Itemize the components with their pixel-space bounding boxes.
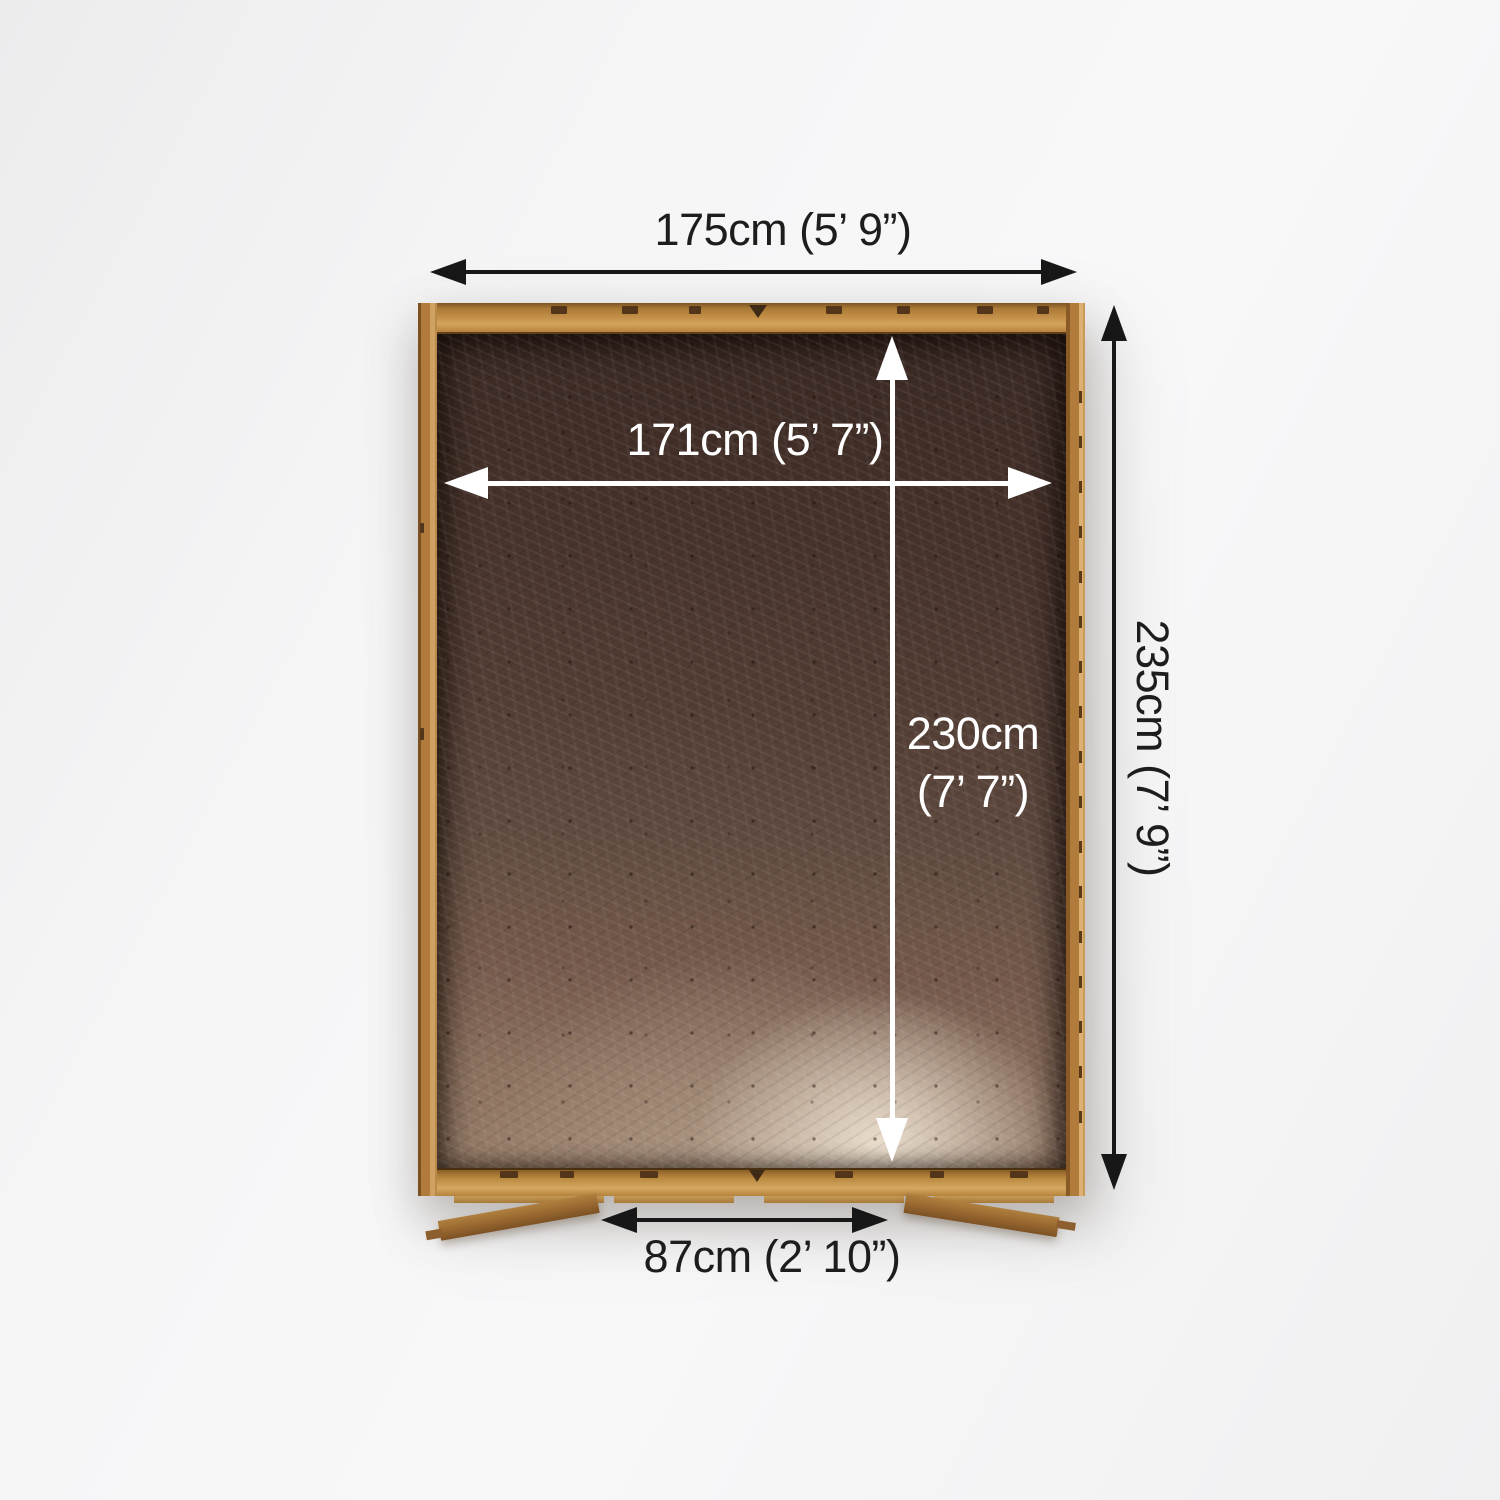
inner-depth-label: 230cm (7’ 7”)	[907, 705, 1040, 821]
board-gap	[622, 306, 638, 314]
arrowhead-down	[1101, 1154, 1127, 1190]
arrow-shaft	[890, 380, 895, 1118]
dimension-diagram: 175cm (5’ 9”) 235cm (7’ 9”) 171cm (5’ 7”…	[0, 0, 1500, 1500]
board-gap	[1037, 306, 1049, 314]
arrowhead-right	[1008, 467, 1052, 499]
arrowhead-left	[601, 1207, 637, 1233]
wall-bottom	[434, 1168, 1069, 1196]
outer-width-label: 175cm (5’ 9”)	[655, 204, 912, 256]
arrowhead-right	[852, 1207, 888, 1233]
board-gap	[551, 306, 567, 314]
board-notch	[749, 1170, 765, 1182]
board-gap	[835, 1171, 853, 1178]
board-gap	[420, 728, 424, 740]
board-gap	[560, 1171, 574, 1178]
inner-depth-line1: 230cm	[907, 705, 1040, 763]
door-width-arrow	[601, 1207, 888, 1233]
arrowhead-right	[1041, 259, 1077, 285]
arrowhead-down	[876, 1118, 908, 1162]
board-gap	[689, 306, 701, 314]
wall-left	[418, 303, 437, 1196]
arrow-shaft	[488, 481, 1008, 486]
board-gap	[826, 306, 842, 314]
board-gap	[977, 306, 993, 314]
board-gap	[640, 1171, 658, 1178]
inner-depth-line2: (7’ 7”)	[907, 763, 1040, 821]
board-gap	[1010, 1171, 1028, 1178]
wall-top	[418, 303, 1085, 334]
arrow-shaft	[637, 1218, 852, 1222]
door-width-label: 87cm (2’ 10”)	[644, 1231, 901, 1283]
outer-depth-label: 235cm (7’ 9”)	[1126, 620, 1178, 877]
base-tab	[614, 1196, 734, 1203]
board-gap	[897, 306, 910, 314]
arrowhead-up	[1101, 305, 1127, 341]
arrowhead-left	[430, 259, 466, 285]
board-notch	[749, 305, 767, 318]
board-gap	[500, 1171, 518, 1178]
board-gap	[420, 523, 424, 533]
arrowhead-left	[444, 467, 488, 499]
outer-depth-arrow	[1101, 305, 1127, 1190]
arrowhead-up	[876, 336, 908, 380]
board-gap	[930, 1171, 944, 1178]
wall-right	[1066, 303, 1085, 1196]
outer-width-arrow	[430, 259, 1077, 285]
arrow-shaft	[1112, 341, 1116, 1154]
base-tab	[764, 1196, 904, 1203]
inner-width-arrow	[444, 466, 1052, 500]
arrow-shaft	[466, 270, 1041, 274]
inner-width-label: 171cm (5’ 7”)	[627, 414, 884, 466]
